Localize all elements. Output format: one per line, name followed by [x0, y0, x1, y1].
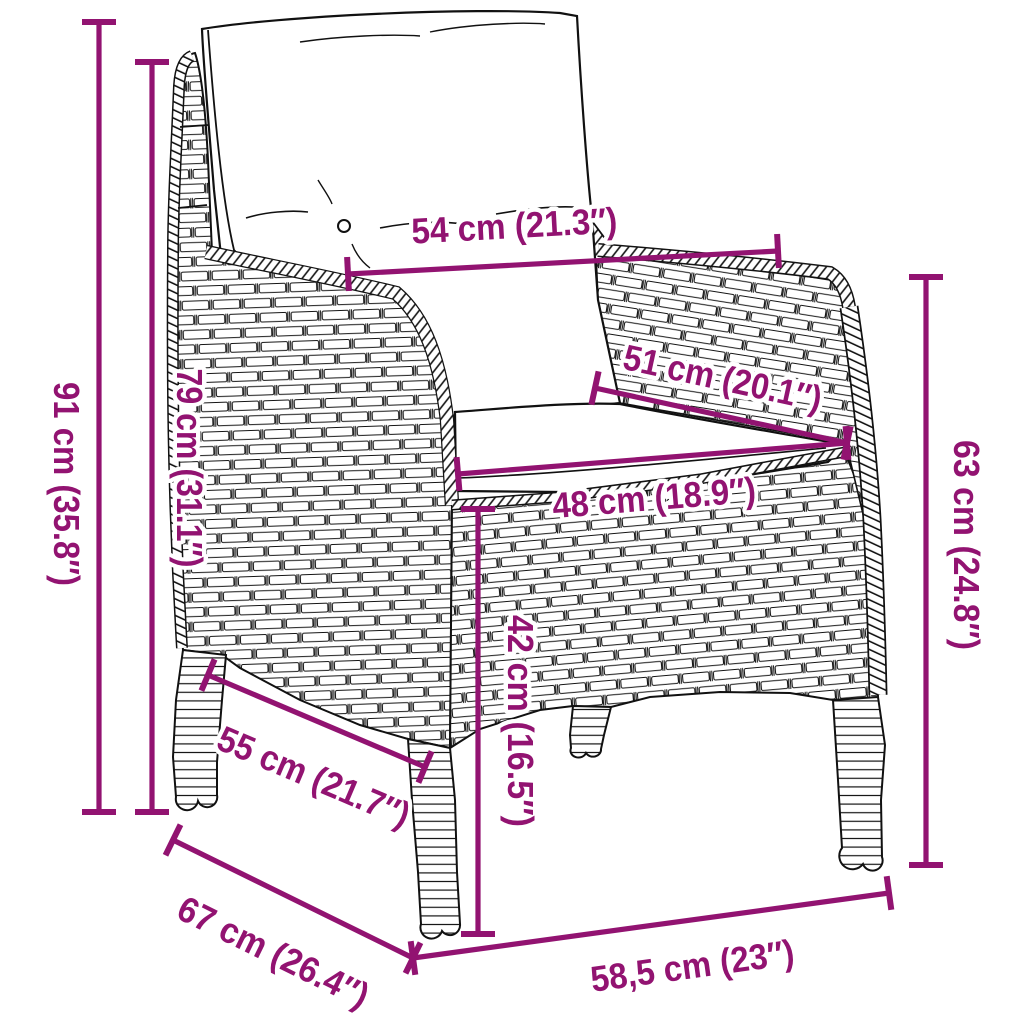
svg-text:63 cm (24.8″): 63 cm (24.8″) — [946, 440, 987, 650]
svg-text:91 cm (35.8″): 91 cm (35.8″) — [46, 382, 87, 586]
svg-text:55 cm (21.7″): 55 cm (21.7″) — [212, 718, 417, 836]
svg-text:42 cm (16.5″): 42 cm (16.5″) — [500, 615, 541, 827]
svg-text:79 cm (31.1″): 79 cm (31.1″) — [169, 369, 210, 568]
svg-text:67 cm (26.4″): 67 cm (26.4″) — [171, 887, 376, 1016]
svg-text:58,5 cm (23″): 58,5 cm (23″) — [588, 931, 797, 999]
